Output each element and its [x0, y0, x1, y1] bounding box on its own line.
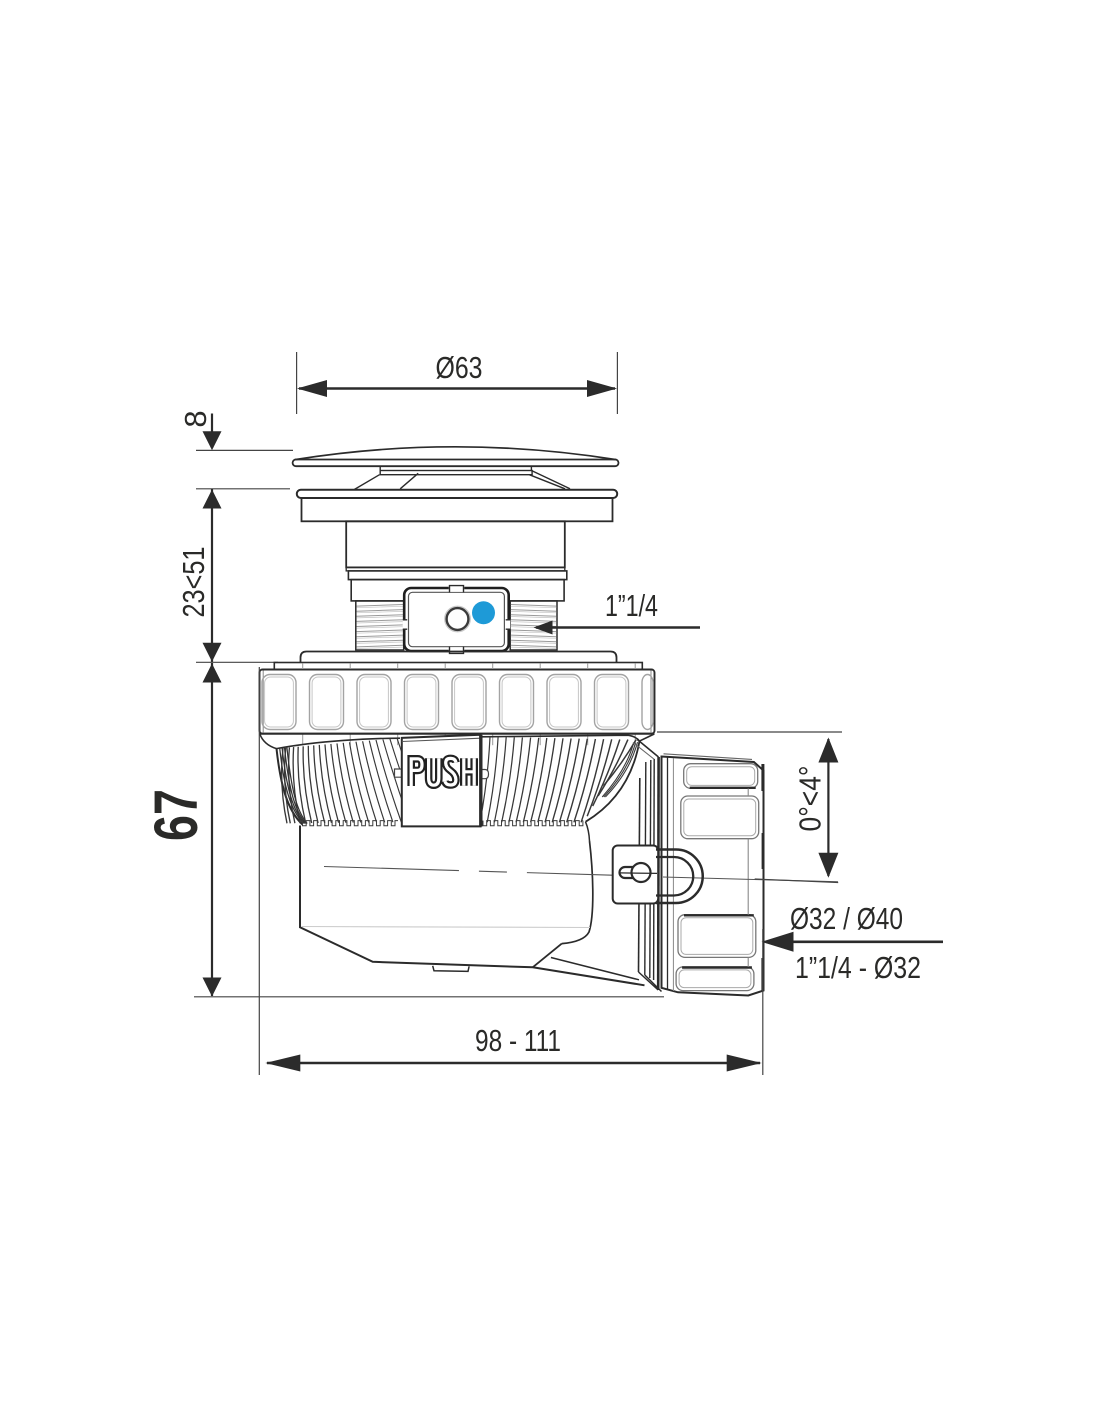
svg-text:1”1/4: 1”1/4 — [605, 588, 658, 623]
svg-text:23<51: 23<51 — [176, 547, 211, 618]
svg-text:0°<4°: 0°<4° — [793, 766, 828, 832]
svg-text:98 - 111: 98 - 111 — [475, 1023, 561, 1058]
svg-text:8: 8 — [178, 410, 213, 427]
svg-text:67: 67 — [142, 789, 210, 841]
svg-text:Ø32 / Ø40: Ø32 / Ø40 — [790, 901, 903, 936]
svg-text:1”1/4 - Ø32: 1”1/4 - Ø32 — [795, 950, 921, 985]
svg-text:Ø63: Ø63 — [436, 350, 483, 385]
